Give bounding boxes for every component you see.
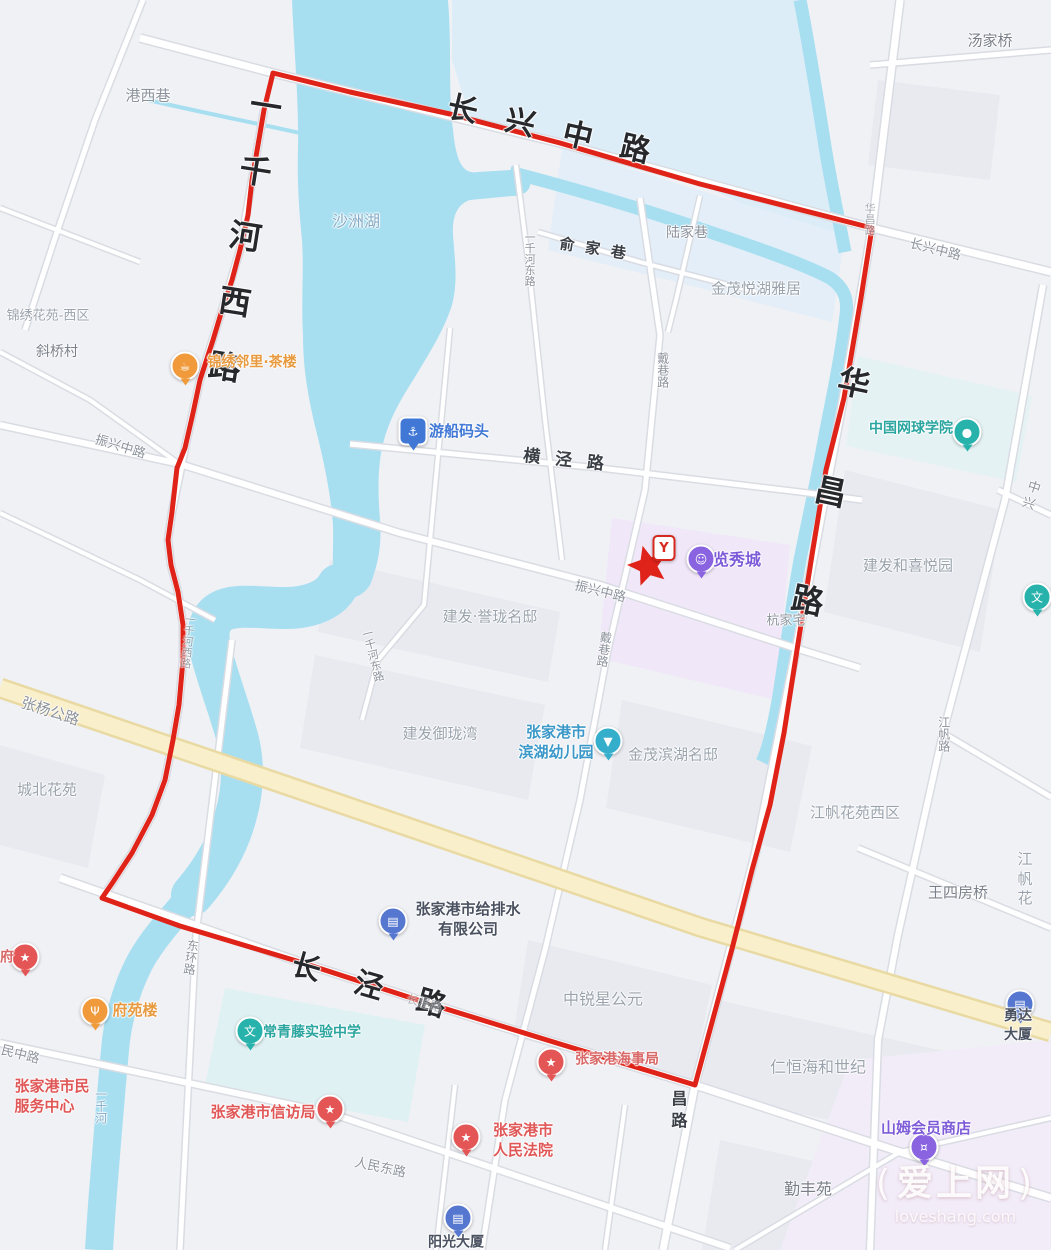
tennis-icon[interactable]: ● bbox=[953, 418, 982, 447]
map-graphics bbox=[0, 0, 1051, 1250]
mall-icon[interactable]: ☺ bbox=[687, 545, 716, 574]
boat-dock-poi-label[interactable]: 游船码头 bbox=[429, 421, 489, 441]
water-company-poi-label[interactable]: 张家港市给排水 有限公司 bbox=[415, 899, 520, 940]
anchor-icon[interactable]: ⚓ bbox=[399, 417, 428, 446]
court-poi-label[interactable]: 张家港市 人民法院 bbox=[493, 1120, 553, 1161]
maritime-star-icon[interactable]: ★ bbox=[537, 1048, 566, 1077]
school-poi-label[interactable]: 常青藤实验中学 bbox=[263, 1024, 361, 1043]
brand-badge-icon[interactable]: Y bbox=[653, 535, 676, 561]
culture-icon[interactable]: 文 bbox=[1023, 583, 1051, 612]
water-company-icon[interactable]: ▤ bbox=[379, 907, 408, 936]
sams-club-poi-label[interactable]: 山姆会员商店 bbox=[881, 1118, 971, 1138]
restaurant-poi-label[interactable]: 府苑楼 bbox=[112, 1000, 157, 1020]
teahouse-poi-label[interactable]: 锦绣邻里·茶楼 bbox=[207, 354, 296, 373]
fu-poi-label[interactable]: 府 bbox=[0, 949, 14, 968]
restaurant-icon[interactable]: Ψ bbox=[81, 997, 110, 1026]
teahouse-icon[interactable]: ☕ bbox=[171, 352, 200, 381]
star-poi-icon[interactable]: ★ bbox=[11, 943, 40, 972]
yongda-tower-poi-label[interactable]: 勇达大厦 bbox=[1002, 1007, 1035, 1045]
kindergarten-icon[interactable]: ▼ bbox=[594, 727, 623, 756]
school-icon[interactable]: 文 bbox=[236, 1017, 265, 1046]
kindergarten-poi-label[interactable]: 张家港市 滨湖幼儿园 bbox=[518, 722, 593, 763]
mall-poi-label[interactable]: 览秀城 bbox=[713, 549, 761, 571]
maritime-bureau-poi-label[interactable]: 张家港海事局 bbox=[575, 1051, 659, 1070]
civic-center-poi-label[interactable]: 张家港市民 服务中心 bbox=[14, 1076, 89, 1117]
sunshine-tower-poi-label[interactable]: 阳光大厦 bbox=[428, 1234, 484, 1250]
petition-star-icon[interactable]: ★ bbox=[316, 1095, 345, 1124]
petition-bureau-poi-label[interactable]: 张家港市信访局 bbox=[210, 1102, 315, 1122]
tower-building-icon[interactable]: ▤ bbox=[444, 1204, 473, 1233]
court-star-icon[interactable]: ★ bbox=[452, 1123, 481, 1152]
tennis-academy-poi-label[interactable]: 中国网球学院 bbox=[869, 420, 953, 439]
map-canvas[interactable]: 港西巷汤家桥沙洲湖长兴中路一千河西路华昌路长泾路昌路长兴中路华昌路陆家巷俞家巷金… bbox=[0, 0, 1051, 1250]
